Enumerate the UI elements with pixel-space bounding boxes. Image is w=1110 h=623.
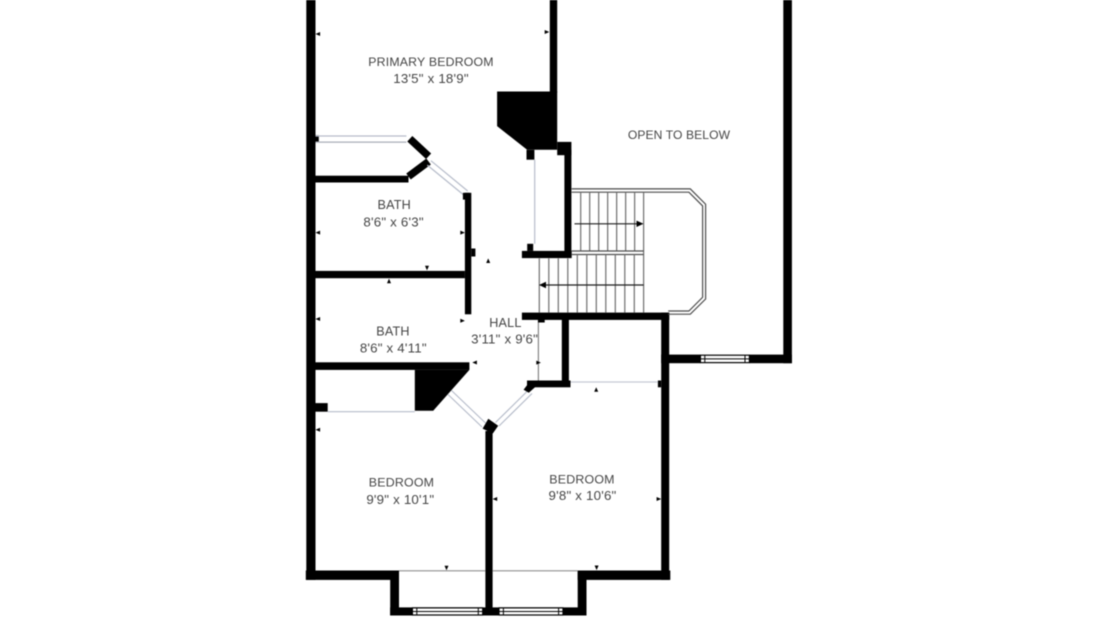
- svg-text:OPEN TO BELOW: OPEN TO BELOW: [628, 128, 731, 142]
- svg-text:3'11" x 9'6": 3'11" x 9'6": [471, 331, 538, 346]
- svg-text:BEDROOM: BEDROOM: [549, 473, 614, 487]
- svg-text:BEDROOM: BEDROOM: [369, 476, 434, 490]
- svg-text:13'5" x 18'9": 13'5" x 18'9": [393, 71, 469, 86]
- svg-text:BATH: BATH: [376, 324, 409, 338]
- svg-text:HALL: HALL: [489, 316, 521, 330]
- svg-text:8'6" x 6'3": 8'6" x 6'3": [363, 214, 423, 229]
- svg-text:PRIMARY BEDROOM: PRIMARY BEDROOM: [368, 55, 494, 69]
- svg-text:8'6" x 4'11": 8'6" x 4'11": [360, 340, 427, 355]
- svg-text:9'9" x 10'1": 9'9" x 10'1": [366, 492, 434, 507]
- svg-text:BATH: BATH: [377, 198, 410, 212]
- svg-text:9'8" x 10'6": 9'8" x 10'6": [549, 488, 617, 503]
